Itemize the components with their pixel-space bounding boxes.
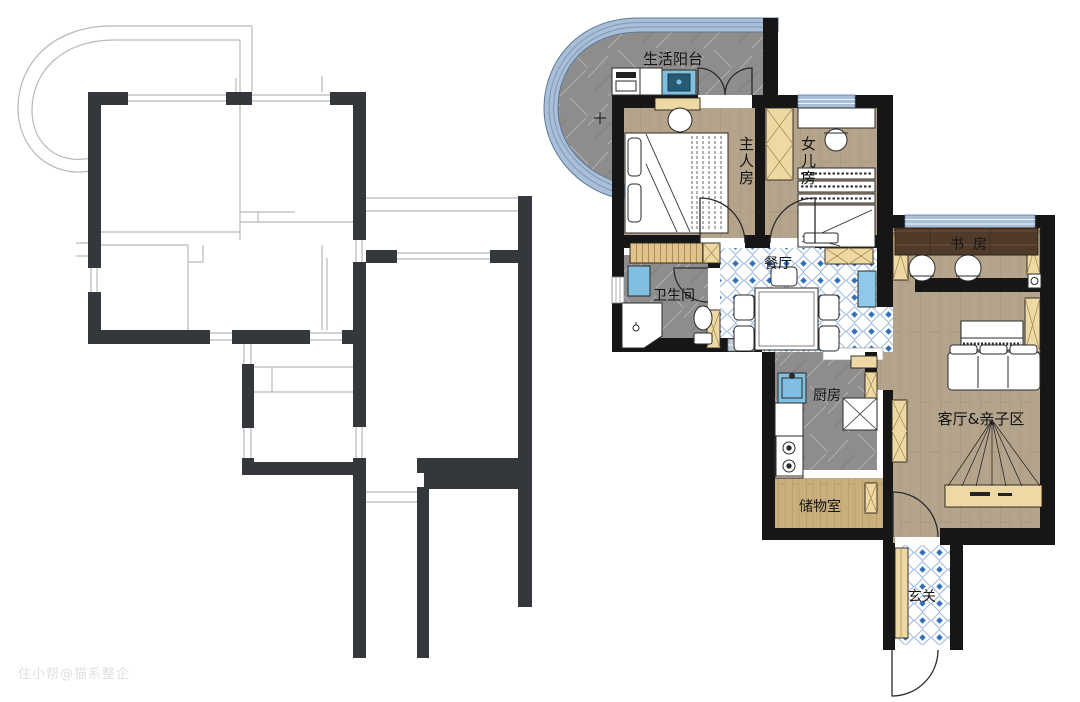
bathroom-top-bench	[630, 243, 703, 263]
label-dining: 餐厅	[764, 256, 792, 272]
original-structure-plan	[0, 0, 540, 702]
label-kitchen: 厨房	[813, 388, 841, 404]
master-bed	[625, 133, 728, 233]
watermark: 住小帮@猫系整企	[18, 663, 130, 682]
master-stool	[668, 108, 692, 132]
label-daughter-room: 女儿房	[799, 135, 817, 187]
sofa	[948, 345, 1040, 390]
label-living: 客厅&亲子区	[938, 410, 1025, 428]
label-foyer: 玄关	[908, 588, 936, 605]
label-bathroom: 卫生间	[653, 288, 695, 304]
label-study: 书房	[950, 237, 996, 253]
bathroom-window	[612, 277, 624, 303]
daughter-bed	[798, 205, 875, 247]
living-east-wardrobe	[1025, 298, 1040, 352]
bath-sink	[628, 266, 650, 296]
foyer-shoe-cabinet	[895, 548, 908, 638]
kitchen-counter	[775, 403, 803, 478]
label-master-bedroom: 主人房	[737, 136, 755, 187]
washing-machine	[662, 70, 696, 95]
label-balcony: 生活阳台	[643, 50, 703, 68]
daughter-room-window	[798, 95, 855, 108]
fridge	[843, 398, 877, 430]
kitchen-sink	[778, 373, 806, 403]
dining-floor-notch	[877, 307, 893, 352]
toilet	[694, 306, 712, 344]
study-window	[905, 215, 1035, 229]
dining-north-wardrobe	[825, 248, 873, 264]
passage-wardrobe	[892, 400, 907, 462]
bedroom-divider-wardrobe	[766, 108, 793, 180]
door-stop-box	[1028, 274, 1041, 288]
renovated-plan: 生活阳台 主人房 女儿房 书房 餐厅 卫生间 厨房 客厅&亲子区 储物室 玄关	[540, 0, 1080, 702]
entry-door	[892, 650, 938, 696]
tv-cabinet	[945, 485, 1042, 507]
floorplan-canvas: 生活阳台 主人房 女儿房 书房 餐厅 卫生间 厨房 客厅&亲子区 储物室 玄关 …	[0, 0, 1080, 702]
balcony-cabinet	[612, 68, 662, 95]
label-storage: 储物室	[799, 498, 841, 515]
original-walls	[88, 92, 532, 658]
dining-blue-cabinet	[858, 271, 876, 307]
